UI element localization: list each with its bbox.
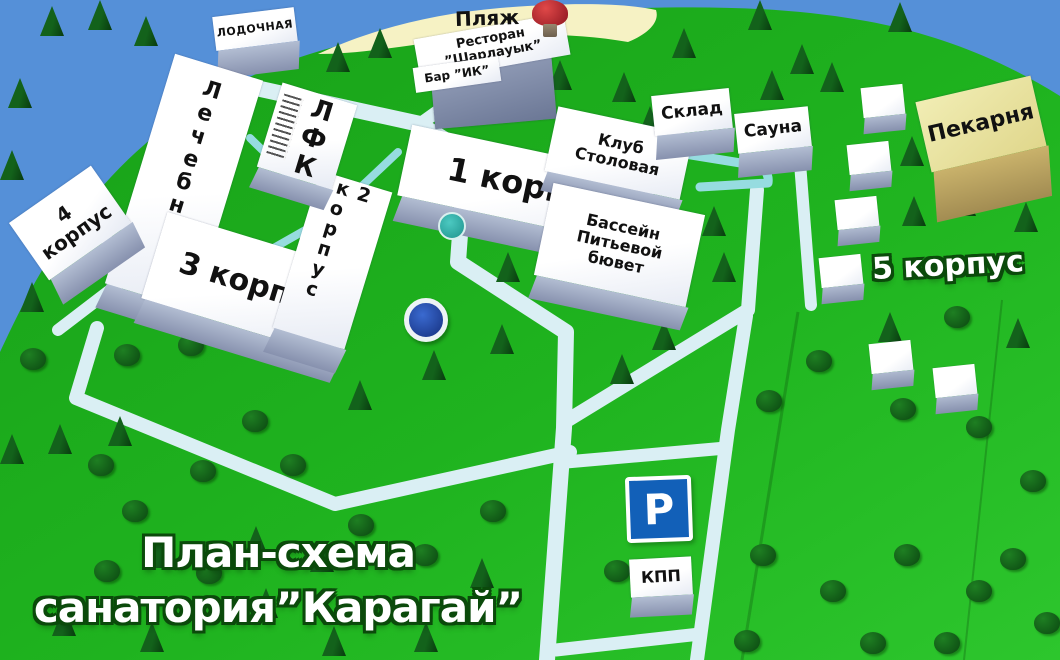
beach-label: Пляж bbox=[455, 5, 520, 31]
korpus-5-label: 5 корпус bbox=[871, 244, 1024, 287]
map-title-line1: План-схема bbox=[18, 526, 538, 581]
map-title-line2: санатория”Карагай” bbox=[18, 581, 538, 636]
sanatorium-map-poster: ЛОДОЧНАЯ Ресторан ”Шарлауык” Бар ”ИК” Ле… bbox=[0, 0, 1060, 660]
map-title: План-схема санатория”Карагай” bbox=[18, 526, 538, 635]
